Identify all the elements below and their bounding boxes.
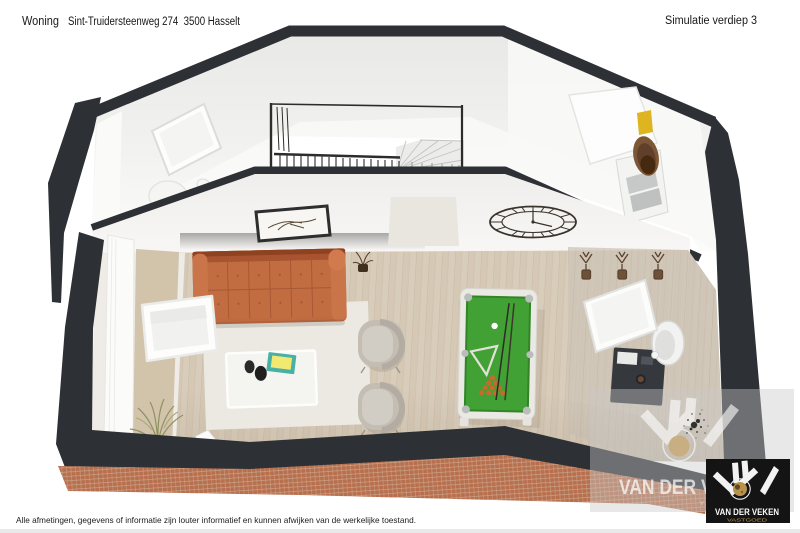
svg-text:Woning: Woning xyxy=(22,13,59,28)
svg-text:Alle afmetingen, gegevens of i: Alle afmetingen, gegevens of informatie … xyxy=(16,515,416,525)
svg-text:VASTGOED: VASTGOED xyxy=(727,518,768,523)
svg-text:VAN DER VEKEN: VAN DER VEKEN xyxy=(715,507,779,517)
svg-text:Simulatie verdiep 3: Simulatie verdiep 3 xyxy=(665,15,757,27)
svg-text:Sint-Truidersteenweg 274 3500: Sint-Truidersteenweg 274 3500 Hasselt xyxy=(68,16,241,28)
